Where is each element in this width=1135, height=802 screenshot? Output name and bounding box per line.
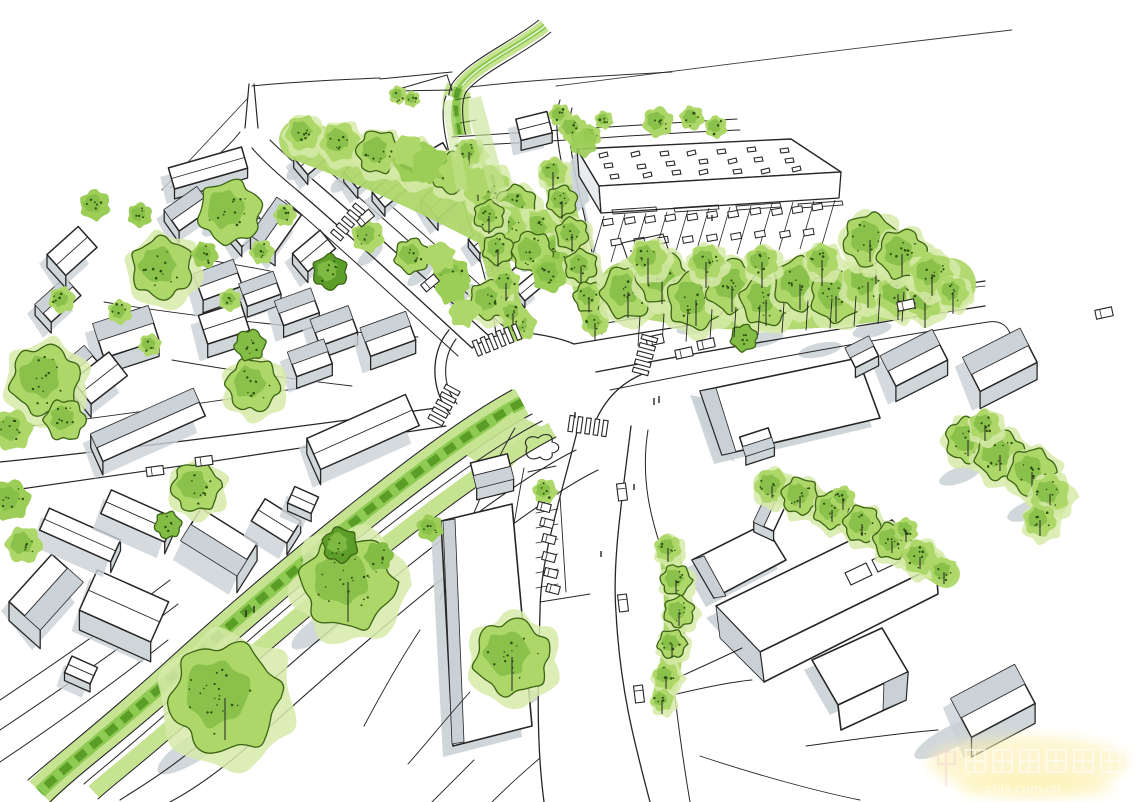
svg-text:chla.com.cn: chla.com.cn: [985, 781, 1060, 796]
